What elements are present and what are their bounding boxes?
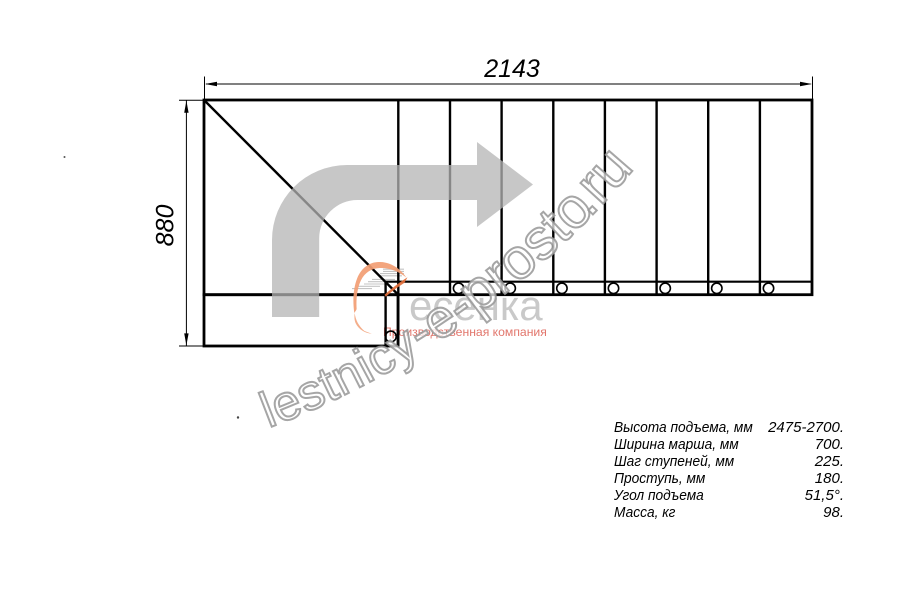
svg-text:lestnicy: lestnicy (252, 314, 427, 438)
svg-text:2143: 2143 (483, 55, 540, 83)
svg-text:880: 880 (152, 205, 180, 247)
